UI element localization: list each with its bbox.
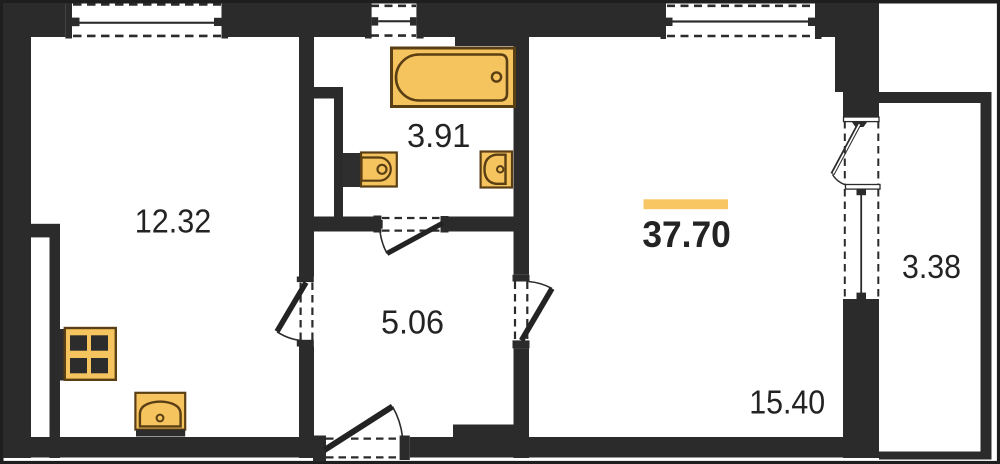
svg-text:5.06: 5.06 (381, 305, 444, 342)
svg-text:3.38: 3.38 (902, 249, 961, 286)
svg-text:15.40: 15.40 (749, 385, 825, 422)
svg-text:3.91: 3.91 (407, 118, 471, 155)
svg-text:37.70: 37.70 (642, 214, 731, 255)
svg-text:12.32: 12.32 (135, 203, 212, 240)
